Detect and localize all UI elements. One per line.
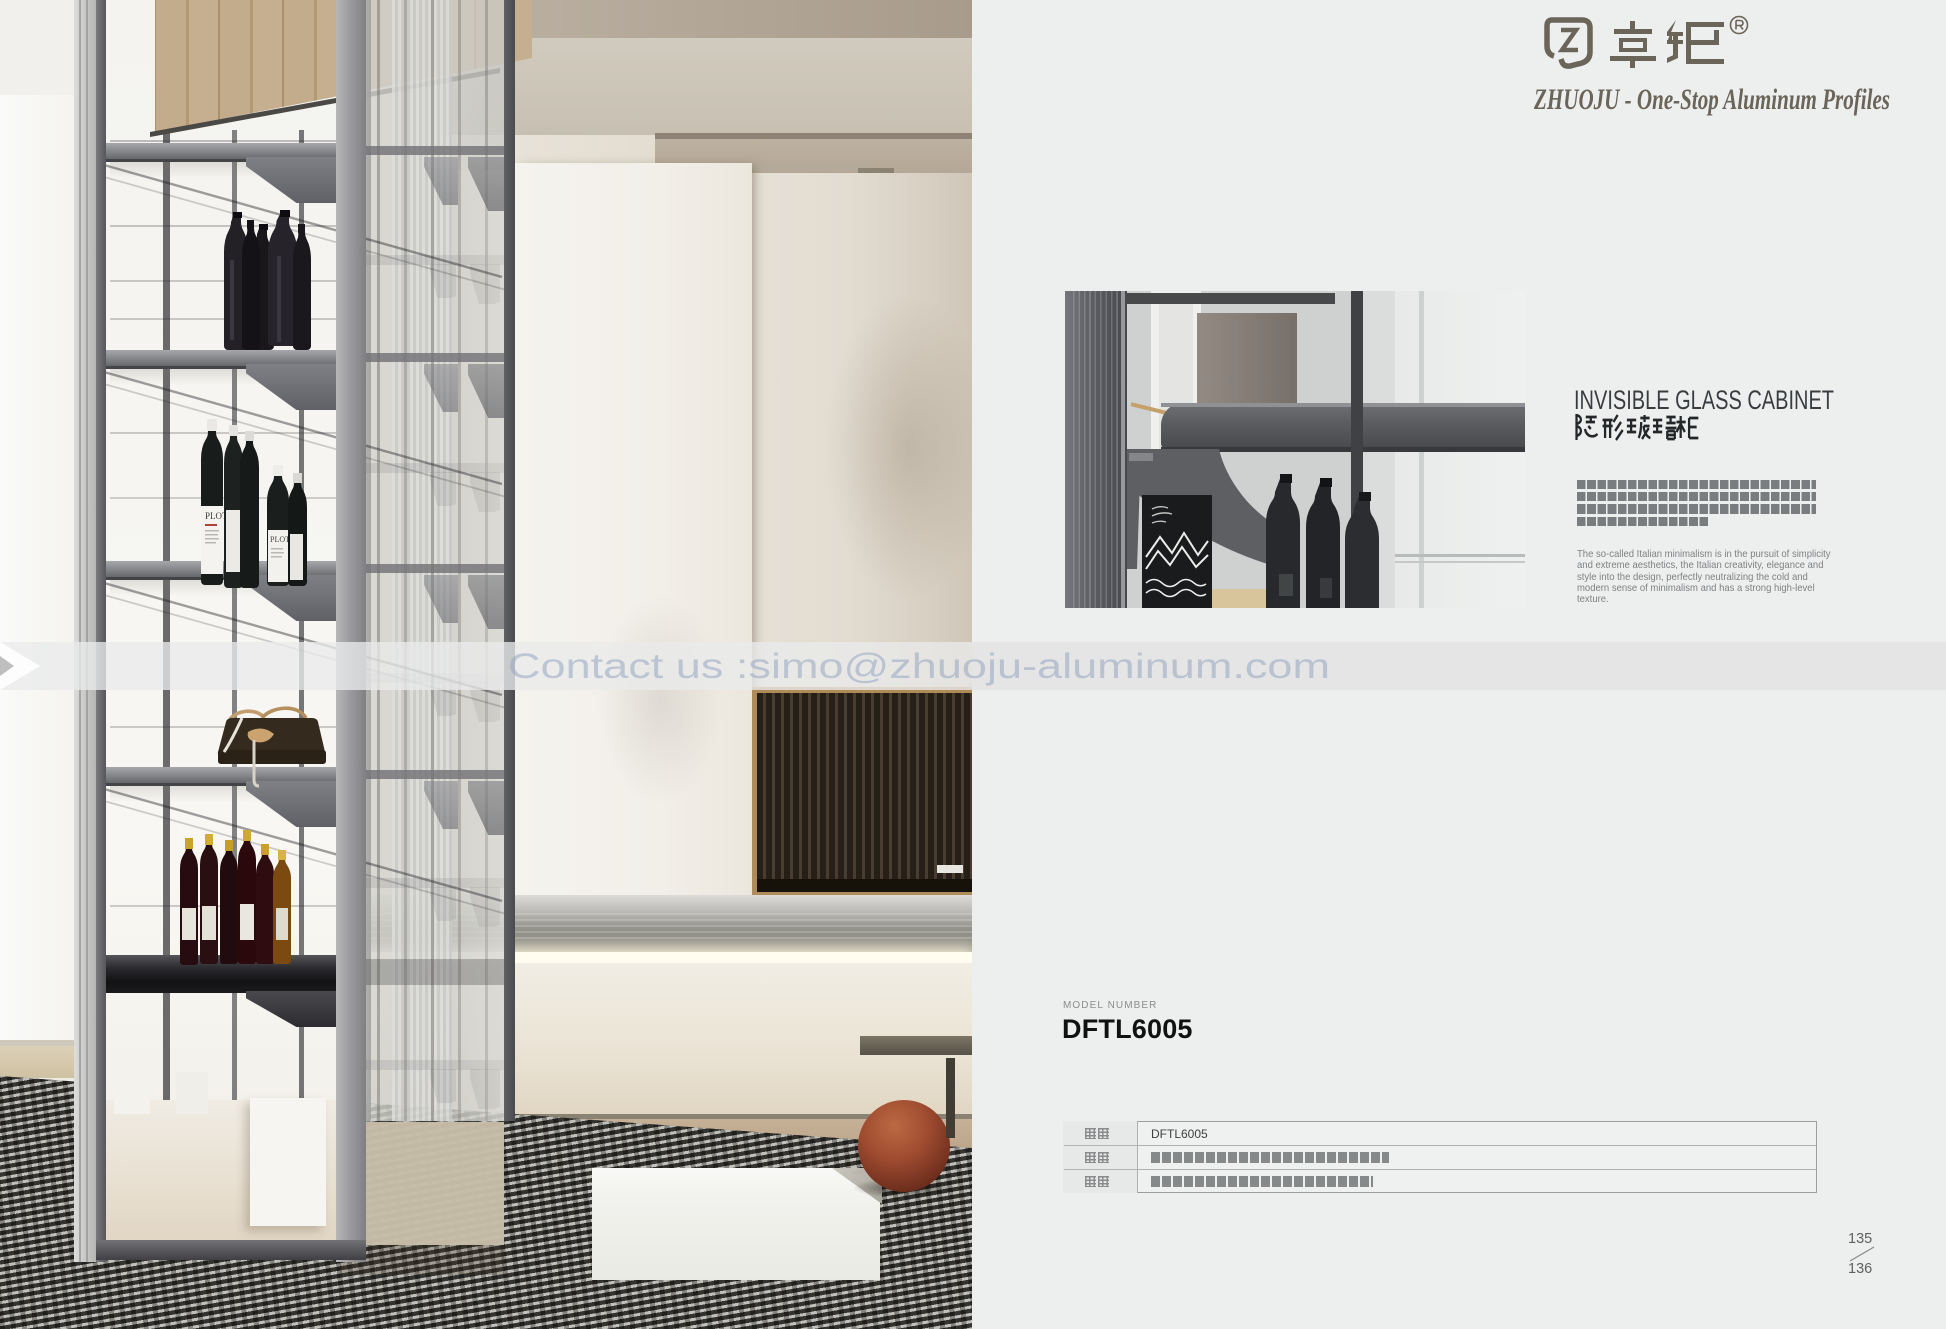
svg-text:INVISIBLE GLASS CABINET: INVISIBLE GLASS CABINET bbox=[1574, 385, 1834, 415]
svg-text:Contact us :simo@zhuoju-alumin: Contact us :simo@zhuoju-aluminum.com bbox=[508, 647, 1330, 686]
svg-text:PLOT: PLOT bbox=[270, 535, 290, 544]
svg-text:ZHUOJU - One-Stop Aluminum Pro: ZHUOJU - One-Stop Aluminum Profiles bbox=[1534, 83, 1890, 116]
